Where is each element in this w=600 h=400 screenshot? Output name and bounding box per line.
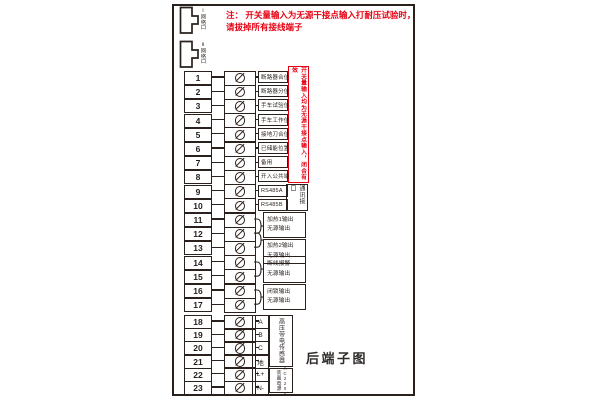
terminal-number: 15 [184, 270, 212, 284]
terminal-row: 23N- [0, 381, 600, 393]
wire [212, 386, 225, 387]
wire [212, 247, 225, 248]
output-group-line1: 加热1输出 [267, 216, 305, 226]
screw-terminal [224, 113, 256, 128]
wire [212, 119, 225, 120]
screw-terminal [224, 142, 256, 157]
group-bracket [254, 287, 263, 307]
terminal-number: 6 [184, 142, 212, 156]
wire [212, 334, 225, 335]
screw-terminal [224, 213, 256, 228]
terminal-row: 7备用 [0, 156, 600, 168]
output-group-line1: 断线报警 [267, 260, 305, 270]
terminal-number: 19 [184, 328, 212, 342]
terminal-label: 断路器合位 [258, 71, 288, 83]
warning-note: 注： 开关量输入为无源干接点输入打耐压试验时， 请拔掉所有接线端子 [226, 10, 413, 33]
wire [212, 204, 225, 205]
screw-terminal [224, 298, 256, 313]
terminal-number: 21 [184, 355, 212, 369]
screw-icon [235, 130, 246, 141]
screw-terminal [224, 269, 256, 284]
terminal-number: 20 [184, 341, 212, 355]
terminal-row: 10RS485B [0, 199, 600, 211]
wire [212, 289, 225, 290]
terminal-number: 17 [184, 298, 212, 312]
terminal-row: 3手车试验位 [0, 99, 600, 111]
terminal-row: 9RS485A [0, 185, 600, 197]
wire [212, 105, 225, 106]
terminal-label: 开入公共端 [258, 170, 288, 182]
terminal-row: 20C [0, 341, 600, 353]
terminal-label: RS485B [258, 199, 288, 211]
output-group-line2: 无源输出 [267, 225, 305, 235]
wire [212, 320, 225, 321]
wire [212, 147, 225, 148]
terminal-label: RS485A [258, 185, 288, 197]
terminal-number: 3 [184, 99, 212, 113]
terminal-number: 2 [184, 85, 212, 99]
wire [212, 76, 225, 77]
wire [212, 233, 225, 234]
terminal-label: 备用 [258, 156, 288, 168]
screw-terminal [224, 184, 256, 199]
screw-terminal [224, 198, 256, 213]
wire [212, 373, 225, 374]
terminal-number: 14 [184, 256, 212, 270]
screw-icon [235, 243, 246, 254]
terminal-number: 22 [184, 368, 212, 382]
terminal-row: 2断路器分位 [0, 85, 600, 97]
terminal-label: N- [252, 381, 269, 395]
wire [212, 218, 225, 219]
output-group-label: 断线报警无源输出 [263, 256, 306, 283]
screw-icon [235, 115, 246, 126]
terminal-number: 4 [184, 114, 212, 128]
screw-icon [235, 370, 246, 381]
terminal-number: 12 [184, 227, 212, 241]
terminal-number: 7 [184, 156, 212, 170]
group-bracket [254, 259, 263, 279]
screw-icon [235, 286, 246, 297]
screw-icon [235, 383, 246, 394]
screw-terminal [224, 227, 256, 242]
warning-line-1: 注： 开关量输入为无源干接点输入打耐压试验时， [226, 10, 413, 22]
screw-terminal [224, 170, 256, 185]
terminal-row: 21地 [0, 355, 600, 367]
ethernet-port-1-label: Ⅰ网络口 [200, 8, 206, 30]
wire [212, 347, 225, 348]
terminal-label: 手车试验位 [258, 99, 288, 111]
terminal-row: 19B [0, 328, 600, 340]
terminal-row: 5接地刀合位 [0, 128, 600, 140]
screw-icon [235, 101, 246, 112]
terminal-number: 11 [184, 213, 212, 227]
terminal-number: 9 [184, 185, 212, 199]
ethernet-port-2-icon [179, 40, 200, 69]
terminal-number: 5 [184, 128, 212, 142]
output-group-line2: 无源输出 [267, 297, 305, 307]
wire [212, 261, 225, 262]
screw-icon [235, 186, 246, 197]
screw-icon [235, 201, 246, 212]
ethernet-port-1-icon [179, 6, 200, 35]
screw-terminal [224, 284, 256, 299]
output-group-label: 闭锁输出无源输出 [263, 284, 306, 310]
terminal-label: 接地刀合位 [258, 128, 288, 140]
screw-terminal [224, 85, 256, 100]
wire [212, 91, 225, 92]
terminal-number: 13 [184, 241, 212, 255]
screw-icon [235, 73, 246, 84]
terminal-label: 手车工作位 [258, 114, 288, 126]
terminal-number: 8 [184, 170, 212, 184]
terminal-number: 23 [184, 381, 212, 395]
screw-icon [235, 300, 246, 311]
wire [212, 162, 225, 163]
screw-icon [235, 257, 246, 268]
screw-icon [235, 272, 246, 283]
wire [212, 133, 225, 134]
terminal-number: 10 [184, 199, 212, 213]
terminal-label: 已储能位置 [258, 142, 288, 154]
terminal-row: 18A [0, 315, 600, 327]
wire [212, 360, 225, 361]
group-bracket [254, 230, 263, 250]
screw-icon [235, 158, 246, 169]
screw-icon [235, 229, 246, 240]
screw-icon [235, 87, 246, 98]
wire [212, 304, 225, 305]
screw-icon [235, 317, 246, 328]
screw-terminal [224, 255, 256, 270]
wire [212, 190, 225, 191]
terminal-number: 16 [184, 284, 212, 298]
terminal-row: 22L+ [0, 368, 600, 380]
terminal-label: 断路器分位 [258, 85, 288, 97]
screw-terminal [224, 127, 256, 142]
terminal-row: 8开入公共端 [0, 170, 600, 182]
ethernet-port-2-label: Ⅱ网络口 [200, 42, 206, 64]
screw-terminal [224, 156, 256, 171]
screw-icon [235, 356, 246, 367]
wire [212, 275, 225, 276]
terminal-number: 18 [184, 315, 212, 329]
screw-icon [235, 330, 246, 341]
terminal-number: 1 [184, 71, 212, 85]
screw-icon [235, 144, 246, 155]
wire [212, 176, 225, 177]
output-group-line1: 闭锁输出 [267, 288, 305, 298]
warning-line-2: 请拔掉所有接线端子 [226, 22, 413, 34]
screw-icon [235, 343, 246, 354]
screw-icon [235, 172, 246, 183]
output-group-line1: 加热2输出 [267, 242, 305, 252]
terminal-row: 1断路器合位 [0, 71, 600, 83]
screw-terminal [224, 241, 256, 256]
output-group-line2: 无源输出 [267, 270, 305, 280]
screw-terminal [224, 99, 256, 114]
terminal-row: 4手车工作位 [0, 114, 600, 126]
screw-icon [235, 215, 246, 226]
screw-terminal [224, 71, 256, 86]
output-group-label: 加热1输出无源输出 [263, 212, 306, 238]
terminal-row: 6已储能位置 [0, 142, 600, 154]
